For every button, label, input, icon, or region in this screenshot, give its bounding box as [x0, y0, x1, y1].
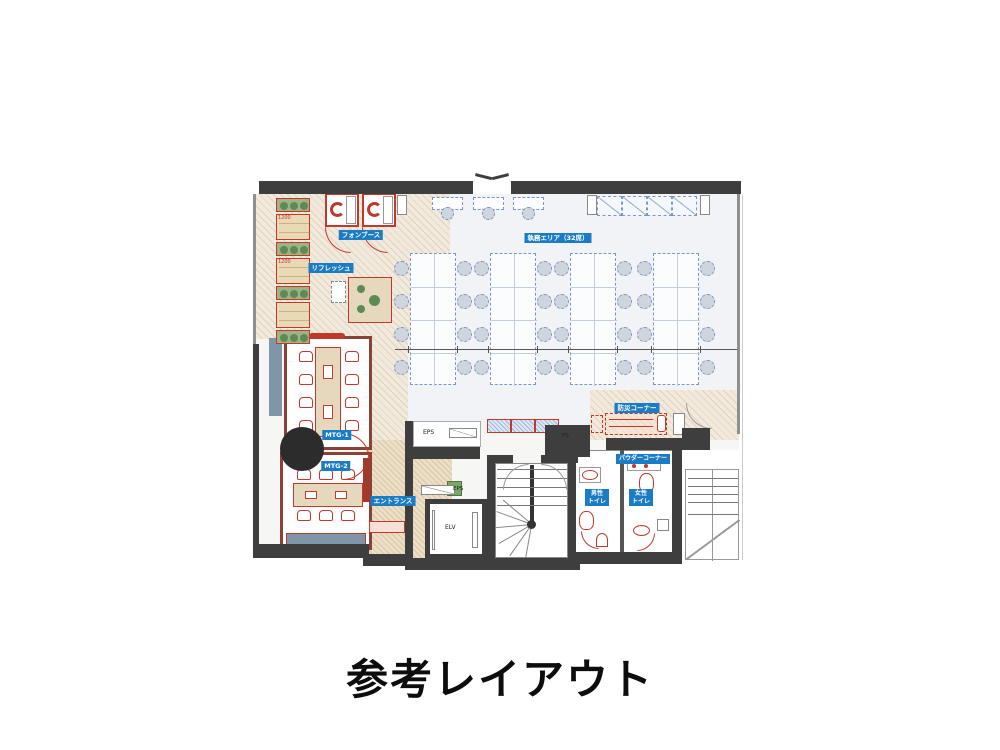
mtg1-table-outlet — [323, 405, 333, 419]
disaster-corner-label: 防災コーナー — [615, 403, 660, 413]
slop-sink — [657, 519, 669, 531]
desk-divider — [411, 353, 457, 354]
desk-divider — [491, 353, 537, 354]
meeting-chair — [297, 510, 311, 521]
office-chair — [474, 327, 489, 342]
wall-fixture — [700, 195, 710, 215]
storage-cell — [487, 419, 511, 433]
dimension-tick — [408, 346, 409, 353]
plant-icon — [357, 285, 365, 293]
building-edge-line — [742, 194, 743, 560]
plant-icon — [280, 202, 288, 210]
stair-step — [688, 494, 738, 495]
page-title: 参考レイアウト — [0, 646, 1000, 707]
locker-cell — [647, 196, 672, 216]
wall-top-right — [511, 181, 741, 194]
wall-stairhall-top — [541, 455, 578, 463]
hall-cabinet — [421, 485, 455, 495]
desk-divider — [654, 320, 700, 321]
mens-toilet-fixture — [579, 511, 594, 530]
bench-line — [279, 320, 309, 321]
plant-icon — [300, 246, 308, 254]
desk-divider — [411, 320, 457, 321]
office-chair — [617, 327, 632, 342]
bench-line — [279, 232, 309, 233]
plant-icon — [290, 290, 298, 298]
dimension-tick — [568, 346, 569, 353]
wall-fixture — [587, 195, 597, 215]
planter — [276, 330, 310, 344]
office-chair — [700, 360, 715, 375]
wall-fixture — [397, 195, 407, 215]
stair-step — [497, 496, 567, 497]
plant-icon — [300, 202, 308, 210]
mtg1-table-outlet — [323, 365, 333, 379]
wall-bottom-entrance — [363, 554, 408, 566]
dimension-tick — [457, 346, 458, 353]
plant-icon — [290, 202, 298, 210]
plant-icon — [290, 246, 298, 254]
locker-cell — [672, 196, 697, 216]
booth-door-panel — [346, 196, 356, 224]
plant-icon — [280, 290, 288, 298]
meeting-chair — [299, 351, 313, 362]
office-chair — [537, 360, 552, 375]
desk-divider — [491, 287, 537, 288]
structural-column — [280, 427, 324, 471]
planter — [276, 198, 310, 212]
office-chair — [537, 327, 552, 342]
mens-sink — [582, 470, 598, 480]
wall-elv-stair — [487, 455, 495, 570]
dimension-text: 1200 — [278, 216, 291, 221]
office-chair — [457, 360, 472, 375]
bench-table — [276, 302, 310, 328]
entrance-door — [363, 458, 370, 502]
office-chair — [457, 294, 472, 309]
office-chair — [522, 207, 535, 220]
office-chair — [617, 294, 632, 309]
desk-divider — [571, 287, 617, 288]
window-wall-left — [253, 194, 256, 344]
wall-left — [253, 344, 259, 544]
window-wall-right — [737, 194, 740, 434]
office-chair — [637, 261, 652, 276]
cabinet-line — [609, 426, 653, 427]
booth-door-panel — [383, 196, 393, 224]
ps-label: PS — [562, 434, 569, 440]
refresh-label: リフレッシュ — [309, 263, 354, 273]
bench-line — [279, 223, 309, 224]
office-chair — [474, 294, 489, 309]
desk-island — [570, 253, 616, 385]
office-chair — [482, 207, 495, 220]
plant-icon — [290, 334, 298, 342]
locker-row — [597, 196, 697, 216]
plant-icon — [300, 290, 308, 298]
elevator-counterweight — [472, 512, 478, 548]
counter-dot — [644, 464, 648, 468]
office-chair — [554, 327, 569, 342]
office-chair — [474, 360, 489, 375]
desk-island — [490, 253, 536, 385]
top-door-leaf — [492, 173, 509, 180]
bench-line — [279, 267, 309, 268]
office-chair — [537, 294, 552, 309]
desk-divider — [654, 353, 700, 354]
cabinet-line — [609, 419, 653, 420]
wall-stairhall-top — [495, 455, 513, 463]
counter-dot — [632, 464, 636, 468]
desk-divider — [411, 287, 457, 288]
office-chair — [700, 327, 715, 342]
elevator-label: ELV — [445, 525, 456, 531]
mtg2-label: MTG-2 — [321, 461, 350, 471]
dimension-tick — [700, 346, 701, 353]
mtg1-table — [315, 347, 341, 437]
powder-corner-label: パウダーコーナー — [616, 454, 670, 464]
office-chair — [457, 327, 472, 342]
meeting-chair — [345, 397, 359, 408]
office-chair — [441, 207, 454, 220]
wall-bottom-left — [253, 544, 369, 558]
stair-step — [688, 502, 738, 503]
mtg1-label: MTG-1 — [322, 430, 351, 440]
disaster-box — [591, 415, 603, 433]
dimension-line — [395, 349, 739, 350]
meeting-chair — [299, 397, 313, 408]
entrance-sign-box — [369, 521, 405, 533]
stair-diagonal — [686, 520, 740, 560]
office-chair — [457, 261, 472, 276]
phone-booth-label: フォンブース — [339, 230, 383, 240]
plant-icon — [280, 246, 288, 254]
stair-step — [688, 478, 738, 479]
meeting-chair — [319, 510, 333, 521]
dimension-tick — [488, 346, 489, 353]
desk-divider — [571, 320, 617, 321]
office-chair — [554, 294, 569, 309]
office-chair — [617, 261, 632, 276]
desk-island — [410, 253, 456, 385]
wall-right-block — [682, 428, 710, 450]
vending-box — [331, 281, 346, 303]
desk-divider — [571, 353, 617, 354]
office-chair — [637, 327, 652, 342]
locker-cell — [597, 196, 622, 216]
meeting-chair — [345, 351, 359, 362]
office-chair — [537, 261, 552, 276]
wall-powder-top — [606, 438, 690, 450]
mtg2-table-outlet — [305, 491, 317, 499]
work-area-label: 執務エリア（32席） — [524, 233, 591, 243]
top-door-leaf — [475, 173, 492, 180]
corridor-floor — [372, 336, 408, 442]
entrance-label: エントランス — [371, 496, 416, 506]
wall-toilet-right — [672, 450, 682, 560]
fire-extinguisher-icon — [657, 415, 666, 432]
dimension-tick — [617, 346, 618, 353]
mtg2-table — [293, 483, 363, 507]
meeting-chair — [299, 374, 313, 385]
office-chair — [617, 360, 632, 375]
mtg1-display — [309, 333, 345, 339]
plant-icon — [280, 334, 288, 342]
office-chair — [394, 360, 409, 375]
bench-table: 1200 — [276, 258, 310, 284]
wall-bottom-toilet — [575, 552, 682, 564]
stair-center-wall — [530, 465, 534, 523]
mtg2-table-outlet — [335, 491, 347, 499]
office-chair — [554, 261, 569, 276]
office-chair — [637, 360, 652, 375]
mens-toilet-label: 男性 トイレ — [585, 489, 609, 506]
locker-cell — [622, 196, 647, 216]
storage-cell — [511, 419, 535, 433]
plant-icon — [369, 295, 380, 306]
office-chair — [700, 261, 715, 276]
stair-newel — [527, 520, 536, 529]
planter — [276, 286, 310, 300]
dimension-tick — [651, 346, 652, 353]
bench-line — [279, 276, 309, 277]
office-chair — [394, 327, 409, 342]
eps-vent — [449, 428, 477, 438]
bench-table: 1200 — [276, 214, 310, 240]
stair-step — [688, 486, 738, 487]
planter — [276, 242, 310, 256]
plant-icon — [357, 305, 365, 313]
elevator-shaft — [425, 499, 487, 559]
eps-label: EPS — [423, 430, 434, 436]
dimension-tick — [537, 346, 538, 353]
dimension-text: 1200 — [278, 260, 291, 265]
office-chair — [394, 294, 409, 309]
floor-plan: ELV — [253, 181, 745, 573]
office-chair — [637, 294, 652, 309]
womens-toilet-label: 女性 トイレ — [629, 489, 653, 506]
stair-step — [688, 514, 738, 515]
booth-chair-icon — [330, 202, 345, 217]
eps-small-label: EPS — [453, 487, 463, 493]
office-chair — [700, 294, 715, 309]
toilet-divider-wall — [620, 450, 624, 552]
office-chair — [554, 360, 569, 375]
wall-top-left — [259, 181, 473, 194]
external-stair — [685, 469, 739, 560]
office-chair — [394, 261, 409, 276]
wall-panel — [269, 338, 282, 416]
meeting-chair — [341, 510, 355, 521]
booth-chair-icon — [367, 202, 382, 217]
elevator-door — [432, 510, 435, 550]
meeting-chair — [345, 374, 359, 385]
wall-eps-bottom — [410, 447, 480, 459]
desk-divider — [654, 287, 700, 288]
plant-icon — [300, 334, 308, 342]
office-chair — [474, 261, 489, 276]
desk-island — [653, 253, 699, 385]
bench-line — [279, 311, 309, 312]
desk-divider — [491, 320, 537, 321]
